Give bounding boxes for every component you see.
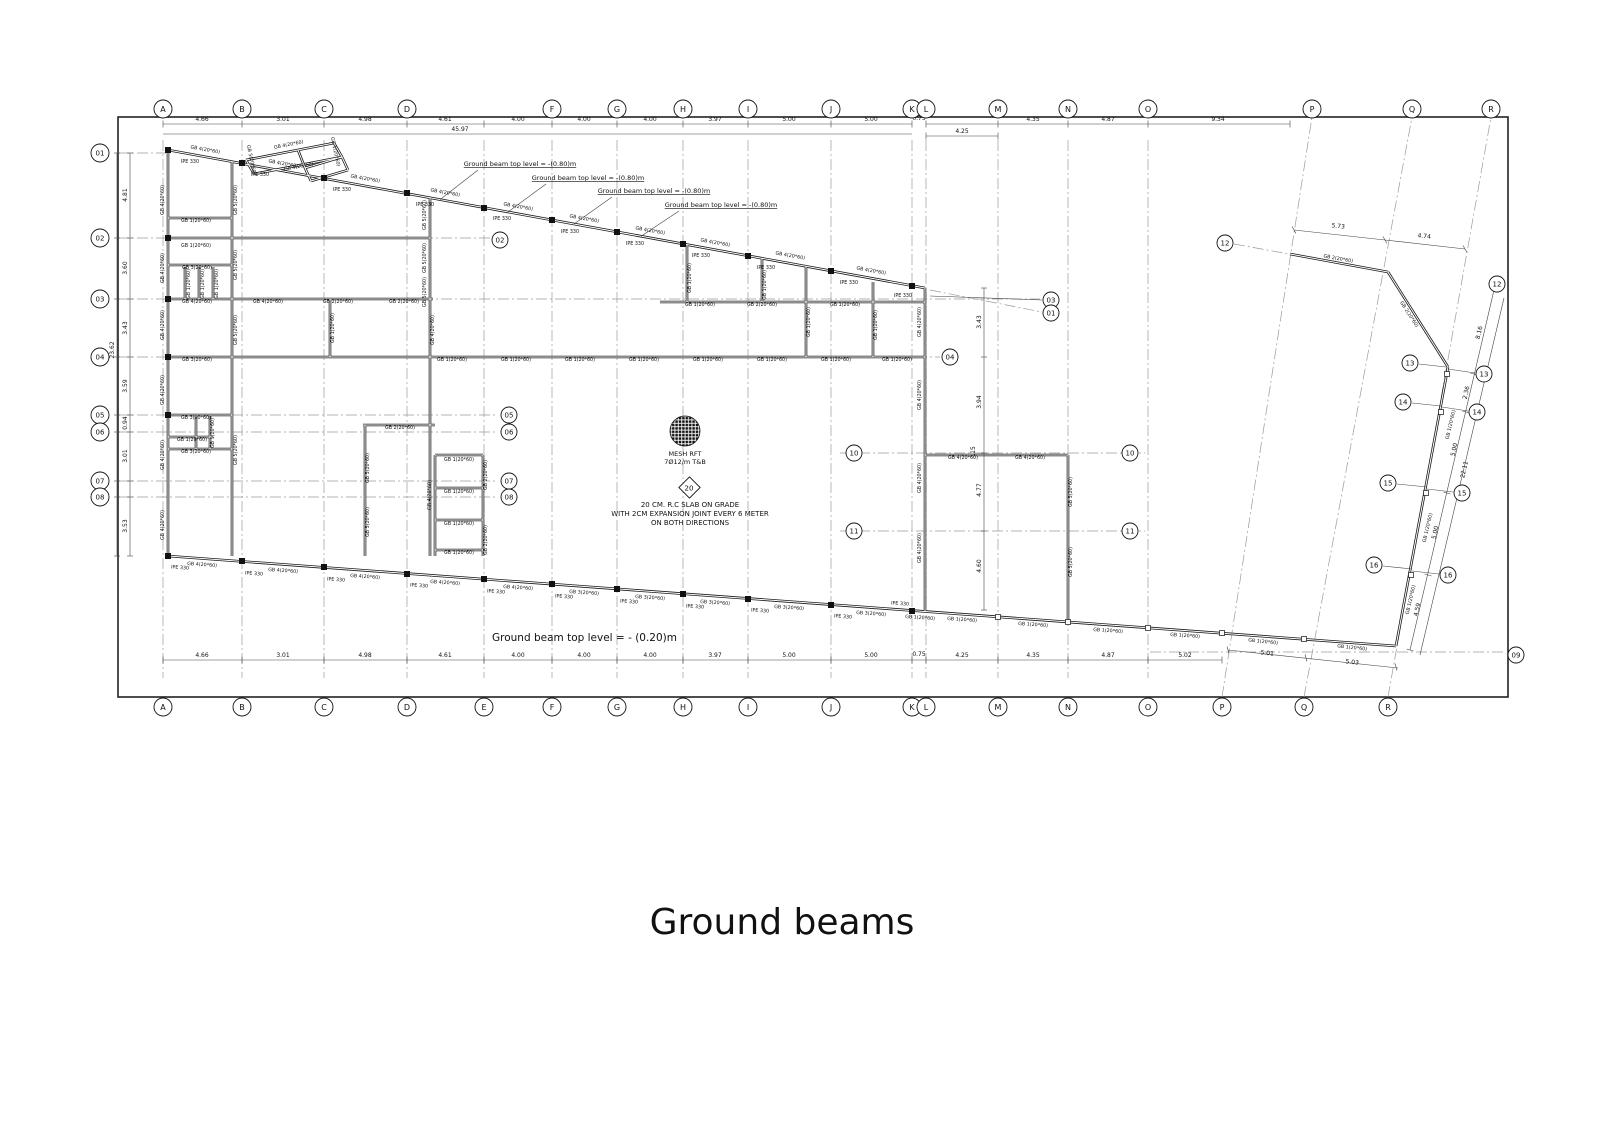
dimension-text: 4.66 bbox=[195, 652, 209, 659]
beam-label: GB 4(20*60) bbox=[775, 250, 806, 261]
svg-text:I: I bbox=[747, 703, 749, 712]
dimension-text: 4.60 bbox=[976, 559, 983, 573]
beam-label: GB 1(20*60) bbox=[444, 550, 474, 556]
svg-text:Q: Q bbox=[1301, 703, 1307, 712]
beam-label: GB 1(20*60) bbox=[330, 313, 336, 343]
beam-label: GB 1(20*60) bbox=[200, 269, 206, 299]
svg-text:K: K bbox=[909, 703, 915, 712]
svg-text:04: 04 bbox=[96, 354, 105, 362]
beam-label: GB 5(20*60) bbox=[1068, 477, 1074, 507]
grid-bubble-14: 14 bbox=[1395, 394, 1411, 410]
beam-label: GB 4(20*60) bbox=[856, 265, 887, 276]
svg-text:K: K bbox=[909, 105, 915, 114]
beam-label: GB 1(20*60) bbox=[214, 269, 220, 299]
beam-label: GB 1(20*60) bbox=[1018, 621, 1048, 629]
slab-note-line3: ON BOTH DIRECTIONS bbox=[651, 519, 730, 527]
beam-label: GB 4(20*60) bbox=[160, 253, 166, 283]
grid-bubble-left-08: 08 bbox=[91, 488, 109, 506]
grid-bubble-bottom-J: J bbox=[822, 698, 840, 716]
beam-label: GB 4(20*60) bbox=[187, 561, 217, 569]
svg-text:L: L bbox=[924, 105, 929, 114]
beam-label: IPE 330 bbox=[891, 600, 909, 607]
grid-bubble-bottom-R: R bbox=[1379, 698, 1397, 716]
mesh-symbol: MESH RFT 7Ø12/m T&B bbox=[664, 416, 706, 466]
grid-bubble-bottom-I: I bbox=[739, 698, 757, 716]
grid-lines bbox=[118, 117, 1504, 697]
beam-label: GB 5(20*60) bbox=[365, 507, 371, 537]
top-level-note: Ground beam top level = -(0.80)m bbox=[464, 160, 576, 168]
svg-text:H: H bbox=[680, 105, 686, 114]
svg-text:A: A bbox=[160, 105, 166, 114]
grid-bubble-top-J: J bbox=[822, 100, 840, 118]
svg-text:05: 05 bbox=[96, 412, 105, 420]
slab-note-line2: WITH 2CM EXPANSION JOINT EVERY 6 METER bbox=[611, 510, 769, 518]
leader-lines bbox=[930, 296, 1475, 574]
top-level-note: Ground beam top level = -(0.80)m bbox=[598, 187, 710, 195]
beam-label: GB 1(20*60) bbox=[1170, 632, 1200, 640]
grid-bubble-bottom-L: L bbox=[917, 698, 935, 716]
beam-label: GB 1(20*60) bbox=[444, 489, 474, 495]
beam-label: GB 4(20*60) bbox=[948, 455, 978, 461]
svg-text:06: 06 bbox=[96, 429, 105, 437]
beam-label: IPE 330 bbox=[620, 598, 638, 605]
beam-label: GB 4(20*60) bbox=[917, 463, 923, 493]
svg-text:P: P bbox=[1220, 703, 1225, 712]
grid-bubble-16: 16 bbox=[1366, 557, 1382, 573]
beam-label: IPE 330 bbox=[834, 613, 852, 620]
beam-label: GB 5(20*60) bbox=[233, 435, 239, 465]
top-level-note: Ground beam top level = -(0.80)m bbox=[665, 201, 777, 209]
svg-text:01: 01 bbox=[96, 150, 105, 158]
dimension-text: 4.00 bbox=[643, 116, 657, 123]
dimension-text: 9.34 bbox=[1211, 116, 1225, 123]
grid-bubble-bottom-O: O bbox=[1139, 698, 1157, 716]
svg-text:12: 12 bbox=[1493, 281, 1502, 289]
grid-bubble-left-07: 07 bbox=[91, 472, 109, 490]
dimension-text: 4.00 bbox=[643, 652, 657, 659]
mesh-note-line2: 7Ø12/m T&B bbox=[664, 458, 706, 466]
beam-label: GB 2(20*60) bbox=[483, 525, 489, 555]
dimension-text: 3.59 bbox=[122, 379, 129, 393]
dimension-text: 4.77 bbox=[976, 483, 983, 497]
dimension-text: 22.11 bbox=[1459, 460, 1470, 478]
dimension-text: 4.74 bbox=[1417, 232, 1431, 240]
grid-bubble-06: 06 bbox=[501, 424, 517, 440]
beam-label: GB 2(20*60) bbox=[385, 425, 415, 431]
beam-label: GB 1(20*60) bbox=[565, 357, 595, 363]
grid-bubble-top-G: G bbox=[608, 100, 626, 118]
svg-text:F: F bbox=[550, 105, 555, 114]
svg-text:11: 11 bbox=[1126, 528, 1135, 536]
beam-label: IPE 330 bbox=[245, 570, 263, 577]
beam-label: IPE 330 bbox=[626, 241, 644, 247]
beam-label: GB 1(20*60) bbox=[444, 457, 474, 463]
svg-text:14: 14 bbox=[1473, 409, 1482, 417]
grid-bubble-top-Q: Q bbox=[1403, 100, 1421, 118]
beam-label: GB 4(20*60) bbox=[160, 375, 166, 405]
grid-bubble-top-I: I bbox=[739, 100, 757, 118]
beam-label: GB 5(20*60) bbox=[233, 185, 239, 215]
svg-text:D: D bbox=[404, 105, 410, 114]
grid-bubble-12: 12 bbox=[1489, 276, 1505, 292]
grid-bubbles: ABCDFGHIJKLMNOPQRABCDEFGHIJKLMNOPQR01020… bbox=[91, 100, 1524, 716]
svg-text:09: 09 bbox=[1512, 652, 1521, 660]
grid-bubble-13: 13 bbox=[1476, 366, 1492, 382]
beam-label: GB 3(20*60) bbox=[700, 599, 730, 607]
grid-bubble-left-02: 02 bbox=[91, 229, 109, 247]
dimension-text: 3.01 bbox=[276, 116, 290, 123]
beam-label: IPE 330 bbox=[561, 229, 579, 235]
slab-note-line1: 20 CM. R.C SLAB ON GRADE bbox=[641, 501, 739, 509]
grid-bubble-15: 15 bbox=[1454, 485, 1470, 501]
grid-bubble-left-06: 06 bbox=[91, 423, 109, 441]
beam-label: GB 4(20*60) bbox=[430, 579, 460, 587]
beam-label: GB 4(20*60) bbox=[160, 185, 166, 215]
beam-label: GB 1(20*60) bbox=[882, 357, 912, 363]
grid-bubble-11: 11 bbox=[1122, 523, 1138, 539]
beam-label: IPE 330 bbox=[333, 187, 351, 193]
beam-label: GB 1(20*60) bbox=[873, 310, 879, 340]
beam-label: GB 1(20*60) bbox=[821, 357, 851, 363]
beam-label: GB 4(20*60) bbox=[160, 310, 166, 340]
svg-text:10: 10 bbox=[850, 450, 859, 458]
svg-text:O: O bbox=[1145, 703, 1151, 712]
beam-label: GB 4(20*60) bbox=[503, 584, 533, 592]
grid-bubble-left-03: 03 bbox=[91, 290, 109, 308]
beam-label: GB 3(20*60) bbox=[181, 449, 211, 455]
dimension-text: 5.00 bbox=[1431, 525, 1441, 540]
dimension-text: 5.00 bbox=[864, 116, 878, 123]
beam-label: IPE 330 bbox=[894, 293, 912, 299]
svg-text:J: J bbox=[829, 105, 832, 114]
grid-bubble-top-H: H bbox=[674, 100, 692, 118]
beam-label: GB 4(20*60) bbox=[160, 440, 166, 470]
dimension-text: 5.00 bbox=[864, 652, 878, 659]
grid-bubble-top-M: M bbox=[989, 100, 1007, 118]
grid-bubble-bottom-N: N bbox=[1059, 698, 1077, 716]
beam-label: GB 1(20*60) bbox=[693, 357, 723, 363]
dimension-text: 4.00 bbox=[577, 652, 591, 659]
slab-marker: 20 bbox=[685, 485, 694, 493]
svg-text:H: H bbox=[680, 703, 686, 712]
svg-text:G: G bbox=[614, 105, 620, 114]
dimension-text: 4.00 bbox=[511, 652, 525, 659]
dimension-text: 4.61 bbox=[438, 116, 452, 123]
grid-bubble-top-P: P bbox=[1303, 100, 1321, 118]
sheet-border bbox=[118, 117, 1508, 697]
slab-note: 20 20 CM. R.C SLAB ON GRADE WITH 2CM EXP… bbox=[611, 477, 769, 527]
beam-label: GB 1(20*60) bbox=[437, 357, 467, 363]
drawing-title: Ground beams bbox=[650, 902, 915, 943]
svg-text:L: L bbox=[924, 703, 929, 712]
dimension-text: .15 bbox=[970, 446, 977, 456]
dimension-text: 4.35 bbox=[1026, 116, 1040, 123]
beam-label: GB 5(20*60) bbox=[233, 315, 239, 345]
beam-label: GB 2(20*60) bbox=[323, 299, 353, 305]
beam-label: GB 3(20*60) bbox=[182, 357, 212, 363]
grid-bubble-bottom-Q: Q bbox=[1295, 698, 1313, 716]
dimension-text: 5.00 bbox=[782, 652, 796, 659]
dimension-text: 5.00 bbox=[782, 116, 796, 123]
beam-label: GB 4(20*60) bbox=[917, 307, 923, 337]
beam-label: GB 5(20*60) bbox=[233, 250, 239, 280]
grid-bubble-top-B: B bbox=[233, 100, 251, 118]
beam-label: GB 1(20*60) bbox=[1248, 637, 1279, 646]
beam-label: GB 1(20*60) bbox=[1445, 409, 1458, 440]
dimension-text: 4.81 bbox=[122, 188, 129, 202]
svg-text:N: N bbox=[1065, 105, 1071, 114]
dimension-text: 5.73 bbox=[1331, 222, 1345, 230]
svg-text:02: 02 bbox=[496, 237, 505, 245]
dimension-text: 4.87 bbox=[1101, 116, 1115, 123]
beam-label: IPE 330 bbox=[493, 216, 511, 222]
dimension-text: 3.53 bbox=[122, 519, 129, 533]
grid-bubble-left-05: 05 bbox=[91, 406, 109, 424]
beam-label: IPE 330 bbox=[692, 253, 710, 259]
svg-text:03: 03 bbox=[96, 296, 105, 304]
beam-label: GB 1(20*60) bbox=[685, 302, 715, 308]
grid-bubble-top-C: C bbox=[315, 100, 333, 118]
grid-bubble-10: 10 bbox=[1122, 445, 1138, 461]
beam-label: GB 1(20*60) bbox=[186, 269, 192, 299]
dimension-text: 23.62 bbox=[109, 341, 116, 358]
beam-label: GB 3(20*60) bbox=[569, 589, 599, 597]
beam-label: GB 5(20*60) bbox=[365, 453, 371, 483]
grid-bubble-top-O: O bbox=[1139, 100, 1157, 118]
beam-label: GB 1(20*60) bbox=[444, 521, 474, 527]
dimension-text: 4.00 bbox=[511, 116, 525, 123]
beam-label: IPE 330 bbox=[410, 582, 428, 589]
svg-text:I: I bbox=[747, 105, 749, 114]
bottom-level-note: Ground beam top level = - (0.20)m bbox=[492, 632, 677, 644]
svg-text:G: G bbox=[614, 703, 620, 712]
dimension-text: 4.98 bbox=[358, 116, 372, 123]
svg-text:M: M bbox=[995, 105, 1002, 114]
grid-bubble-13: 13 bbox=[1402, 355, 1418, 371]
beam-label: GB 4(20*60) bbox=[917, 380, 923, 410]
beam-label: GB 4(20*60) bbox=[350, 573, 380, 581]
grid-bubble-bottom-M: M bbox=[989, 698, 1007, 716]
beam-label: IPE 330 bbox=[686, 603, 704, 610]
svg-text:M: M bbox=[995, 703, 1002, 712]
beam-label: GB 1(20*60) bbox=[1093, 627, 1123, 635]
svg-text:05: 05 bbox=[505, 412, 514, 420]
mesh-note-line1: MESH RFT bbox=[669, 450, 702, 458]
svg-text:08: 08 bbox=[505, 494, 514, 502]
grid-bubble-top-D: D bbox=[398, 100, 416, 118]
beam-label: GB 1(20*60) bbox=[210, 418, 216, 448]
beam-label: GB 1(20*60) bbox=[806, 307, 812, 337]
dimension-text: 3.94 bbox=[976, 395, 983, 409]
beam-label: IPE 330 bbox=[555, 593, 573, 600]
dimension-text: 4.00 bbox=[577, 116, 591, 123]
svg-text:12: 12 bbox=[1221, 240, 1230, 248]
svg-text:F: F bbox=[550, 703, 555, 712]
dimension-text: 3.97 bbox=[708, 116, 722, 123]
svg-text:Q: Q bbox=[1409, 105, 1415, 114]
top-level-note: Ground beam top level = -(0.80)m bbox=[532, 174, 644, 182]
beam-label: GB 1(20*60) bbox=[830, 302, 860, 308]
beam-label: GB 5(20*60) bbox=[422, 243, 428, 273]
beam-label: GB 4(20*60) bbox=[160, 510, 166, 540]
grid-bubble-bottom-C: C bbox=[315, 698, 333, 716]
dimension-text: 0.94 bbox=[122, 416, 129, 430]
grid-bubble-bottom-A: A bbox=[154, 698, 172, 716]
grid-bubble-04: 04 bbox=[942, 349, 958, 365]
beam-label: IPE 330 bbox=[840, 280, 858, 286]
beam-label: GB 1(20*60) bbox=[181, 218, 211, 224]
beam-label: GB 4(20*60) bbox=[427, 480, 433, 510]
grid-bubble-15: 15 bbox=[1380, 475, 1396, 491]
beam-label: GB 1(20*60) bbox=[687, 263, 693, 293]
top-level-notes: Ground beam top level = -(0.80)mGround b… bbox=[440, 160, 777, 236]
dimension-text: 3.01 bbox=[122, 449, 129, 463]
beam-label: GB 1(20*60) bbox=[905, 614, 935, 622]
beam-label: GB 2(20*60) bbox=[747, 302, 777, 308]
dimension-text: 0.75 bbox=[912, 651, 926, 658]
beam-label: GB 1(20*60) bbox=[757, 357, 787, 363]
dimension-text: 45.97 bbox=[451, 126, 468, 133]
beam-label: GB 4(20*60) bbox=[268, 567, 298, 575]
dimension-text: 3.01 bbox=[276, 652, 290, 659]
dimension-text: 5.01 bbox=[1260, 649, 1274, 657]
dimension-texts: 4.663.014.984.614.004.004.003.975.005.00… bbox=[109, 115, 1484, 667]
beam-label: IPE 330 bbox=[751, 607, 769, 614]
svg-text:13: 13 bbox=[1480, 371, 1489, 379]
grid-bubble-bottom-G: G bbox=[608, 698, 626, 716]
svg-text:J: J bbox=[829, 703, 832, 712]
svg-text:C: C bbox=[321, 105, 327, 114]
grid-bubble-left-04: 04 bbox=[91, 348, 109, 366]
beam-label: IPE 330 bbox=[327, 576, 345, 583]
beam-label: GB 5(20*60) bbox=[1068, 547, 1074, 577]
beam-label: GB 4(20*60) bbox=[430, 187, 461, 198]
dimension-text: 4.87 bbox=[1101, 652, 1115, 659]
dimension-text: 4.25 bbox=[955, 652, 969, 659]
svg-text:16: 16 bbox=[1370, 562, 1379, 570]
beam-label: GB 4(20*60) bbox=[917, 533, 923, 563]
grid-bubble-left-01: 01 bbox=[91, 144, 109, 162]
svg-text:14: 14 bbox=[1399, 399, 1408, 407]
svg-text:B: B bbox=[239, 703, 245, 712]
grid-bubble-bottom-B: B bbox=[233, 698, 251, 716]
beams bbox=[165, 143, 1450, 646]
grid-bubble-05: 05 bbox=[501, 407, 517, 423]
svg-text:11: 11 bbox=[850, 528, 859, 536]
svg-text:10: 10 bbox=[1126, 450, 1135, 458]
svg-text:15: 15 bbox=[1384, 480, 1393, 488]
svg-text:01: 01 bbox=[1047, 310, 1056, 318]
svg-text:R: R bbox=[1488, 105, 1494, 114]
dimension-text: 4.61 bbox=[438, 652, 452, 659]
svg-text:A: A bbox=[160, 703, 166, 712]
svg-text:C: C bbox=[321, 703, 327, 712]
dimension-text: 4.98 bbox=[358, 652, 372, 659]
svg-text:15: 15 bbox=[1458, 490, 1467, 498]
dimension-text: 4.25 bbox=[955, 128, 969, 135]
dimension-text: 4.59 bbox=[1413, 602, 1423, 617]
grid-bubble-11: 11 bbox=[846, 523, 862, 539]
grid-bubble-bottom-E: E bbox=[475, 698, 493, 716]
dimension-text: 3.60 bbox=[122, 261, 129, 275]
svg-text:04: 04 bbox=[946, 354, 955, 362]
svg-text:O: O bbox=[1145, 105, 1151, 114]
dimension-lines bbox=[114, 121, 1504, 671]
beam-label: GB 4(20*60) bbox=[1015, 455, 1045, 461]
grid-bubble-bottom-H: H bbox=[674, 698, 692, 716]
grid-bubble-bottom-P: P bbox=[1213, 698, 1231, 716]
dimension-text: 5.00 bbox=[1450, 442, 1460, 457]
beam-label: GB 1(20*60) bbox=[177, 437, 207, 443]
grid-bubble-01: 01 bbox=[1043, 305, 1059, 321]
beam-label: GB 4(20*60) bbox=[430, 315, 436, 345]
beam-label: GB 5(20*60) bbox=[422, 200, 428, 230]
svg-text:R: R bbox=[1385, 703, 1391, 712]
grid-bubble-12: 12 bbox=[1217, 235, 1233, 251]
beam-label: IPE 330 bbox=[181, 159, 199, 165]
dimension-text: 2.36 bbox=[1462, 385, 1472, 400]
beam-label: GB 3(20*60) bbox=[635, 594, 665, 602]
beam-label: GB 1(20*60) bbox=[501, 357, 531, 363]
grid-bubble-top-R: R bbox=[1482, 100, 1500, 118]
grid-bubble-02: 02 bbox=[492, 232, 508, 248]
grid-bubble-top-L: L bbox=[917, 100, 935, 118]
svg-text:P: P bbox=[1310, 105, 1315, 114]
grid-bubble-bottom-F: F bbox=[543, 698, 561, 716]
grid-bubble-bottom-D: D bbox=[398, 698, 416, 716]
dimension-text: 5.03 bbox=[1345, 658, 1359, 666]
svg-text:07: 07 bbox=[96, 478, 105, 486]
dimension-text: 4.66 bbox=[195, 116, 209, 123]
svg-text:06: 06 bbox=[505, 429, 514, 437]
drawing-sheet: MESH RFT 7Ø12/m T&B 20 20 CM. R.C SLAB O… bbox=[0, 0, 1600, 1131]
svg-text:E: E bbox=[481, 703, 486, 712]
dimension-text: 3.97 bbox=[708, 652, 722, 659]
ground-beams-plan: MESH RFT 7Ø12/m T&B 20 20 CM. R.C SLAB O… bbox=[0, 0, 1600, 1131]
grid-bubble-top-F: F bbox=[543, 100, 561, 118]
beam-label: GB 4(20*60) bbox=[253, 299, 283, 305]
svg-text:N: N bbox=[1065, 703, 1071, 712]
beam-label: GB 1(20*60) bbox=[181, 243, 211, 249]
grid-bubble-09: 09 bbox=[1508, 647, 1524, 663]
svg-text:08: 08 bbox=[96, 494, 105, 502]
grid-bubble-14: 14 bbox=[1469, 404, 1485, 420]
svg-text:D: D bbox=[404, 703, 410, 712]
beam-label: GB 3(20*60) bbox=[774, 604, 804, 612]
beam-label: IPE 330 bbox=[171, 564, 189, 571]
dimension-text: 3.43 bbox=[122, 321, 129, 335]
grid-bubble-07: 07 bbox=[501, 473, 517, 489]
beam-label: GB 3(20*60) bbox=[856, 610, 886, 618]
dimension-text: 5.02 bbox=[1178, 652, 1192, 659]
beam-label: IPE 330 bbox=[487, 588, 505, 595]
beam-label: GB 1(20*60) bbox=[629, 357, 659, 363]
beam-label: GB 1(20*60) bbox=[762, 270, 768, 300]
grid-bubble-10: 10 bbox=[846, 445, 862, 461]
grid-bubble-16: 16 bbox=[1440, 567, 1456, 583]
grid-bubble-08: 08 bbox=[501, 489, 517, 505]
grid-bubble-top-N: N bbox=[1059, 100, 1077, 118]
svg-text:13: 13 bbox=[1406, 360, 1415, 368]
beam-label: GB 2(20*60) bbox=[389, 299, 419, 305]
beam-label: GB 2(20*60) bbox=[483, 460, 489, 490]
svg-text:16: 16 bbox=[1444, 572, 1453, 580]
svg-text:07: 07 bbox=[505, 478, 514, 486]
beam-label: GB 3(20*60) bbox=[181, 415, 211, 421]
svg-text:03: 03 bbox=[1047, 297, 1056, 305]
grid-bubble-top-A: A bbox=[154, 100, 172, 118]
beam-label: GB 1(20*60) bbox=[947, 616, 977, 624]
